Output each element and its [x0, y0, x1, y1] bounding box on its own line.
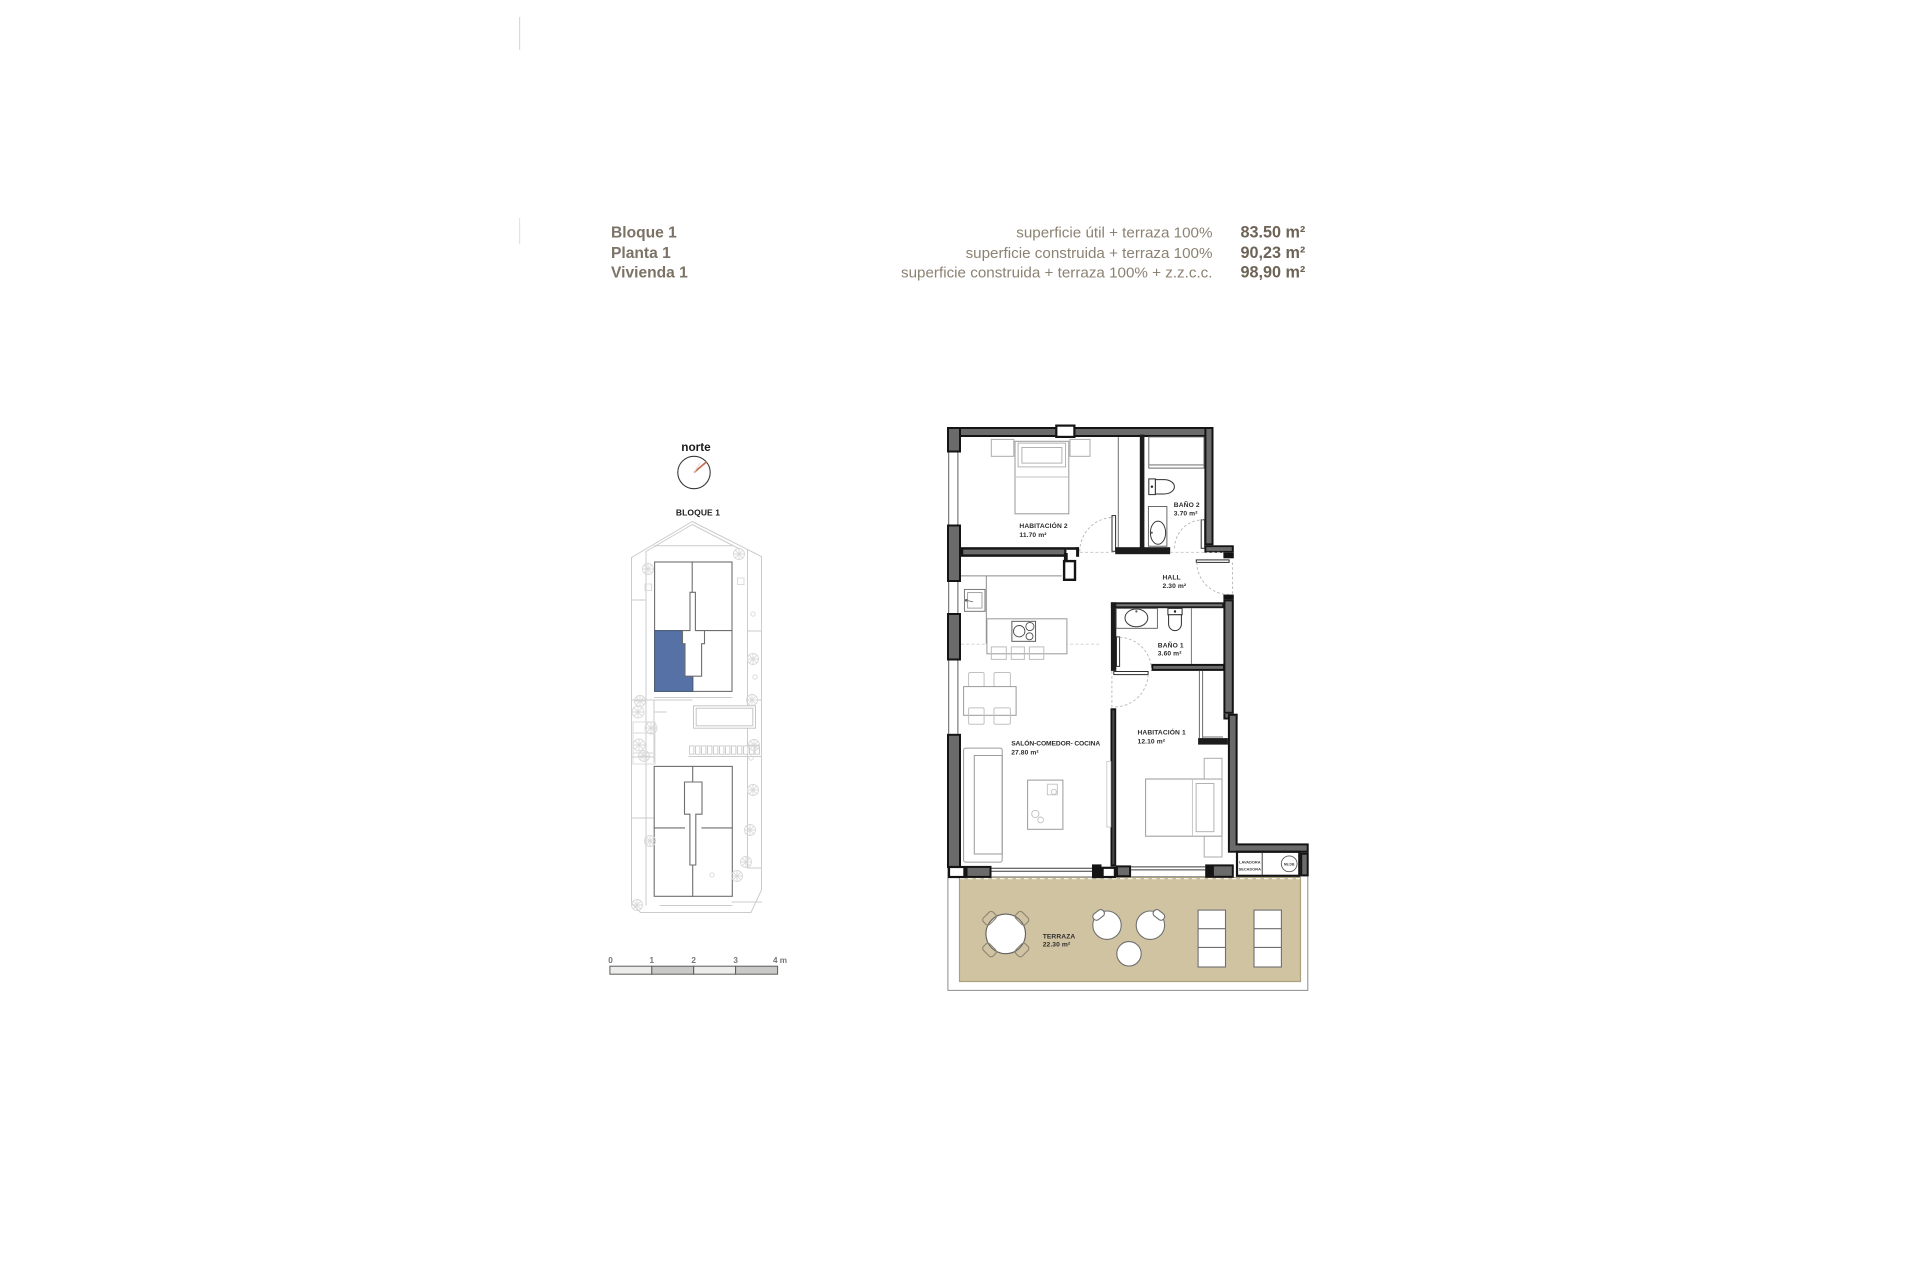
- svg-text:BAÑO 1: BAÑO 1: [1158, 640, 1184, 649]
- svg-text:90,23 m²: 90,23 m²: [1241, 244, 1306, 262]
- svg-text:2: 2: [691, 956, 696, 965]
- svg-text:LAVADORA: LAVADORA: [1239, 859, 1261, 864]
- svg-text:22.30 m²: 22.30 m²: [1043, 942, 1071, 949]
- svg-text:BAÑO 2: BAÑO 2: [1174, 500, 1200, 509]
- svg-text:4 m: 4 m: [773, 956, 787, 965]
- svg-text:superficie construida + terraz: superficie construida + terraza 100% + z…: [901, 264, 1213, 281]
- svg-text:11.70 m²: 11.70 m²: [1019, 532, 1047, 539]
- svg-text:HABITACIÓN 2: HABITACIÓN 2: [1019, 521, 1067, 530]
- svg-text:3.70 m²: 3.70 m²: [1174, 511, 1198, 518]
- svg-text:norte: norte: [681, 440, 711, 454]
- svg-text:Planta 1: Planta 1: [611, 245, 671, 262]
- svg-text:BLOQUE 1: BLOQUE 1: [676, 508, 720, 518]
- svg-text:NE.DB: NE.DB: [1284, 862, 1295, 866]
- svg-text:superficie construida + terraz: superficie construida + terraza 100%: [966, 245, 1213, 262]
- svg-text:83.50 m²: 83.50 m²: [1241, 224, 1306, 242]
- svg-text:Bloque 1: Bloque 1: [611, 225, 677, 242]
- svg-text:12.10 m²: 12.10 m²: [1138, 738, 1166, 745]
- svg-text:2.30 m²: 2.30 m²: [1163, 583, 1187, 590]
- svg-text:98,90 m²: 98,90 m²: [1241, 263, 1306, 281]
- svg-text:TERRAZA: TERRAZA: [1043, 934, 1076, 941]
- svg-text:27.80 m²: 27.80 m²: [1011, 750, 1039, 757]
- svg-text:Vivienda 1: Vivienda 1: [611, 264, 688, 281]
- svg-text:0: 0: [608, 956, 613, 965]
- svg-text:superficie útil + terraza 100%: superficie útil + terraza 100%: [1016, 225, 1212, 242]
- svg-text:HALL: HALL: [1163, 575, 1181, 582]
- svg-text:1: 1: [650, 956, 655, 965]
- svg-text:3: 3: [733, 956, 738, 965]
- svg-text:3.60 m²: 3.60 m²: [1158, 651, 1182, 658]
- svg-text:SALÓN-COMEDOR- COCINA: SALÓN-COMEDOR- COCINA: [1011, 739, 1100, 748]
- svg-text:SECADORA: SECADORA: [1239, 867, 1261, 872]
- svg-text:HABITACIÓN 1: HABITACIÓN 1: [1138, 728, 1186, 737]
